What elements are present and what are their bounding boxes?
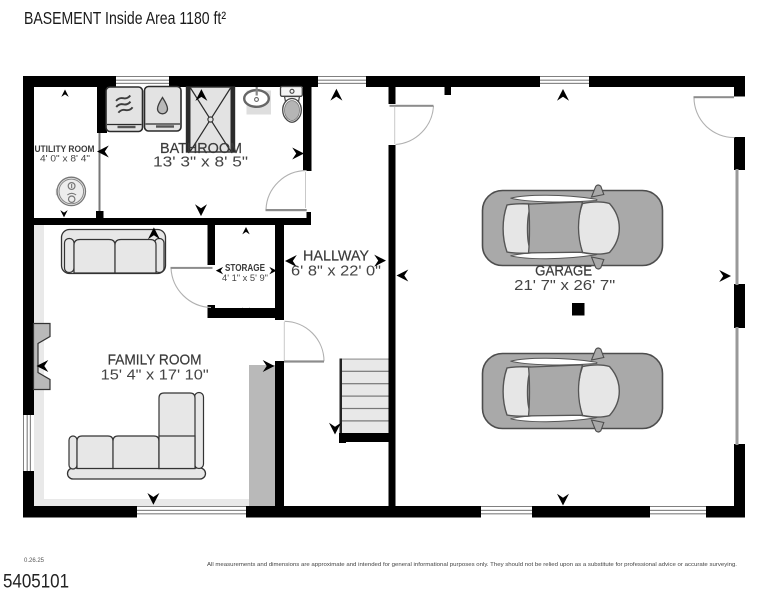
svg-text:15' 4" x 17' 10": 15' 4" x 17' 10"	[101, 368, 209, 384]
svg-text:4' 0" x 8' 4": 4' 0" x 8' 4"	[40, 154, 90, 165]
svg-text:5405101: 5405101	[3, 572, 69, 593]
svg-text:UTILITY ROOM: UTILITY ROOM	[35, 144, 95, 154]
svg-text:4' 1" x 5' 9": 4' 1" x 5' 9"	[222, 273, 268, 284]
svg-text:HALLWAY: HALLWAY	[303, 249, 369, 265]
svg-text:All measurements and dimension: All measurements and dimensions are appr…	[207, 562, 737, 568]
svg-text:6' 8" x 22' 0": 6' 8" x 22' 0"	[291, 264, 381, 280]
svg-text:21' 7" x 26' 7": 21' 7" x 26' 7"	[514, 278, 615, 294]
svg-text:FAMILY ROOM: FAMILY ROOM	[108, 353, 202, 369]
svg-text:13' 3" x 8' 5": 13' 3" x 8' 5"	[153, 155, 248, 171]
svg-text:BASEMENT Inside Area 1180 ft²: BASEMENT Inside Area 1180 ft²	[24, 8, 226, 28]
svg-text:0.26.25: 0.26.25	[24, 558, 45, 564]
